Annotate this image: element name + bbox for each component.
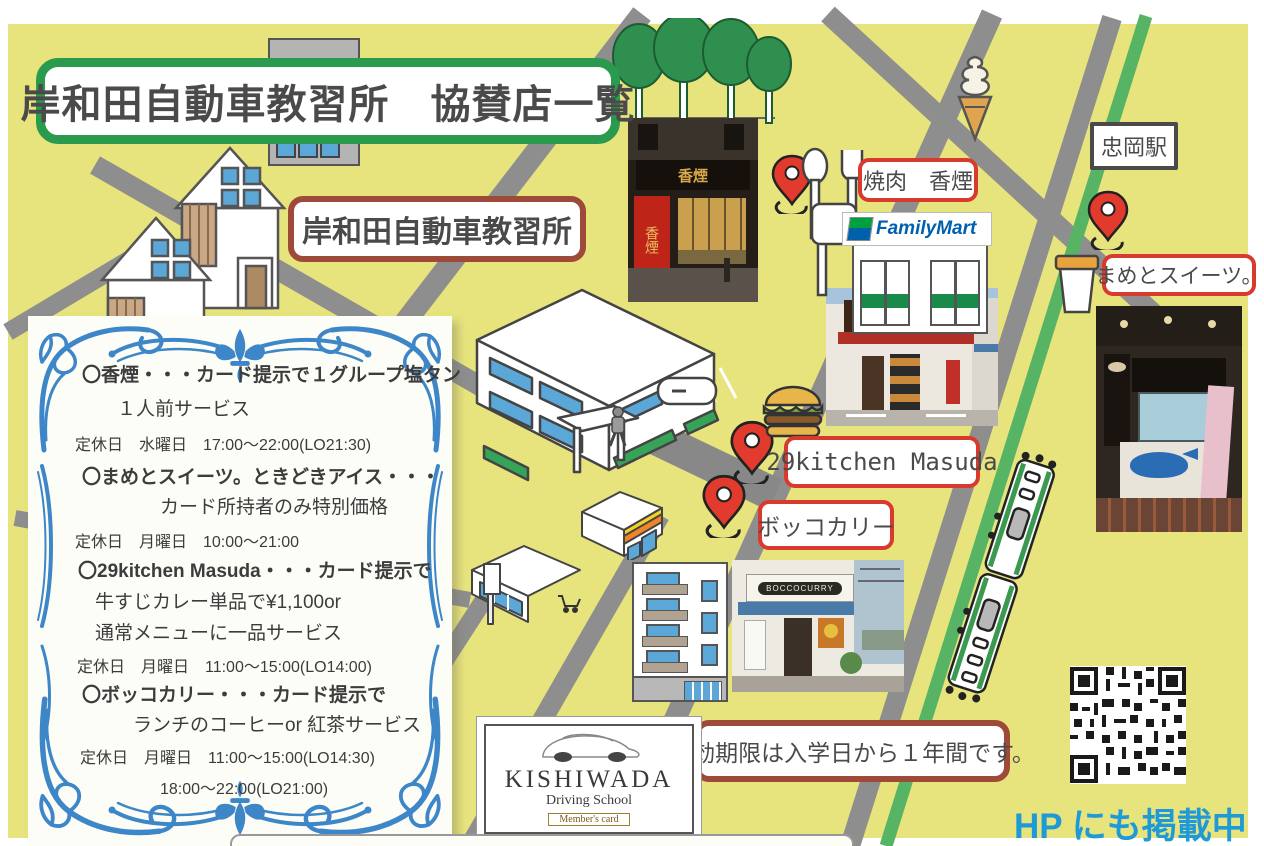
location-pin-station	[1080, 188, 1136, 250]
apartment-window	[701, 580, 718, 602]
benefit-bokko-hours: 定休日 月曜日 11:00～15:00(LO14:30)	[80, 744, 375, 768]
soft-serve-icon	[945, 55, 1005, 143]
benefit-kitchen-3: 通常メニューに一品サービス	[95, 618, 342, 645]
bocco-sign: BOCCOCURRY	[746, 574, 854, 602]
benefit-kitchen-hours: 定休日 月曜日 11:00～15:00(LO14:00)	[77, 653, 372, 677]
familymart-store	[852, 246, 988, 334]
label-bokko-curry: ボッコカリー	[758, 500, 894, 550]
burger-icon	[760, 383, 826, 441]
label-station: 忠岡駅	[1090, 122, 1178, 170]
benefit-kaen: 〇香煙・・・カード提示で１グループ塩タン	[82, 360, 461, 387]
driving-school-building	[462, 288, 732, 488]
benefit-mameto: 〇まめとスイーツ。ときどきアイス・・・	[82, 462, 440, 489]
convenience-store-illustration	[576, 486, 666, 560]
shopping-cart-icon	[558, 596, 580, 612]
train-icon	[930, 450, 1070, 710]
familymart-logo-text: FamilyMart	[876, 218, 976, 240]
familymart-flag-icon	[846, 217, 873, 241]
bocco-photo: BOCCOCURRY	[732, 560, 904, 692]
card-subtitle: Driving School	[486, 793, 692, 809]
benefit-bokko-hours-2: 18:00～22:00(LO21:00)	[160, 775, 328, 799]
benefit-bokko: 〇ボッコカリー・・・カード提示で	[82, 680, 386, 707]
benefit-kitchen: 〇29kitchen Masuda・・・カード提示で	[78, 556, 432, 583]
location-pin-bokko	[694, 472, 754, 538]
benefit-mameto-hours: 定休日 月曜日 10:00～21:00	[75, 528, 299, 552]
bottom-partial-box	[230, 834, 854, 846]
member-card: KISHIWADA Driving School Member's card	[476, 716, 702, 842]
hp-note: HP にも掲載中	[1014, 798, 1247, 846]
page-title: 岸和田自動車教習所 協賛店一覧	[36, 58, 620, 144]
benefit-bokko-2: ランチのコーヒーor 紅茶サービス	[133, 710, 421, 737]
member-card-inner: KISHIWADA Driving School Member's card	[484, 724, 694, 834]
car-icon	[658, 378, 716, 404]
kaen-sign: 香煙	[636, 160, 750, 190]
benefit-mameto-2: カード所持者のみ特別価格	[160, 492, 388, 519]
label-yakiniku-kaen: 焼肉 香煙	[858, 158, 978, 202]
mameto-photo	[1096, 306, 1242, 532]
validity-note: 有効期限は入学日から１年間です。	[694, 720, 1010, 782]
supermarket-illustration	[462, 538, 587, 628]
familymart-sign: FamilyMart	[842, 212, 992, 246]
benefit-kaen-hours: 定休日 水曜日 17:00～22:00(LO21:30)	[75, 431, 371, 455]
card-school-name: KISHIWADA	[486, 767, 692, 792]
flyer-page: 香煙 香煙 Masuda	[0, 0, 1264, 846]
qr-code	[1070, 666, 1186, 784]
label-driving-school: 岸和田自動車教習所	[288, 196, 586, 262]
car-icon	[529, 729, 649, 765]
balcony	[642, 584, 688, 595]
benefit-kaen-2: １人前サービス	[117, 394, 250, 421]
benefits-panel: 〇香煙・・・カード提示で１グループ塩タン １人前サービス 定休日 水曜日 17:…	[28, 316, 452, 846]
apartment-base	[634, 676, 726, 700]
card-badge: Member's card	[548, 813, 629, 826]
benefit-kitchen-2: 牛すじカレー単品で¥1,100or	[95, 587, 341, 614]
label-mameto-sweets: まめとスイーツ。	[1102, 254, 1256, 296]
kaen-photo: 香煙 香煙	[628, 118, 758, 302]
apartment-illustration	[632, 562, 728, 702]
whale-mural	[1130, 452, 1188, 478]
label-29kitchen-masuda: 29kitchen Masuda	[784, 436, 980, 488]
